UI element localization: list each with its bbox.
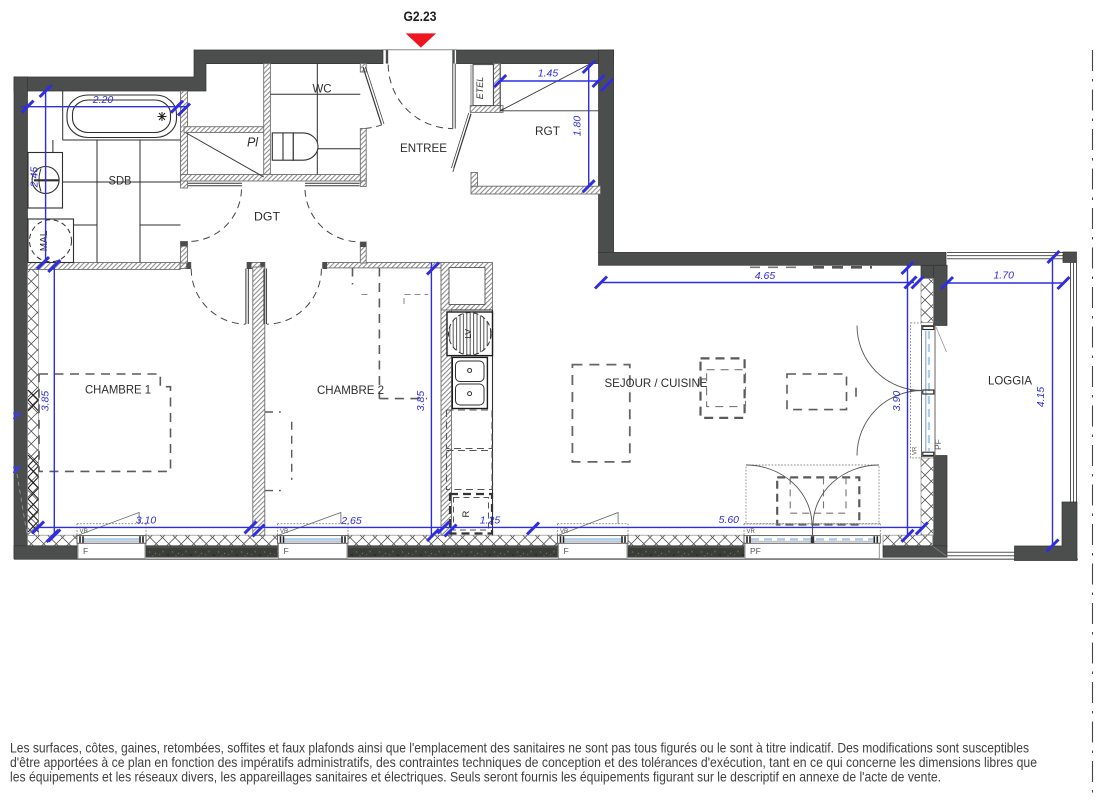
svg-text:4.65: 4.65	[755, 270, 776, 282]
svg-text:1.80: 1.80	[572, 116, 584, 137]
svg-text:1.25: 1.25	[480, 515, 501, 527]
svg-text:SDB: SDB	[109, 174, 132, 188]
svg-text:2.65: 2.65	[340, 515, 362, 527]
svg-text:ENTREE: ENTREE	[400, 141, 447, 155]
svg-text:les équipements et les réseaux: les équipements et les réseaux divers, l…	[10, 770, 941, 785]
svg-text:3.90: 3.90	[891, 391, 903, 412]
svg-text:PF: PF	[933, 439, 943, 450]
svg-text:DGT: DGT	[254, 210, 281, 224]
svg-text:LV: LV	[463, 329, 473, 339]
svg-text:WC: WC	[313, 81, 332, 95]
svg-text:F: F	[83, 546, 88, 556]
svg-text:4.15: 4.15	[1035, 387, 1047, 408]
svg-text:2.20: 2.20	[92, 94, 114, 106]
svg-text:RGT: RGT	[535, 124, 561, 138]
svg-text:d'être apportées à ce plan en: d'être apportées à ce plan en fonction d…	[10, 755, 1037, 770]
svg-text:VR: VR	[747, 529, 756, 535]
svg-text:Les surfaces, côtes, gaines, r: Les surfaces, côtes, gaines, retombées, …	[10, 741, 1029, 756]
svg-text:Pl: Pl	[247, 136, 259, 150]
svg-text:LOGGIA: LOGGIA	[988, 374, 1032, 388]
svg-text:CHAMBRE 2: CHAMBRE 2	[317, 383, 384, 397]
svg-text:CHAMBRE 1: CHAMBRE 1	[85, 383, 151, 397]
svg-text:2.45: 2.45	[29, 167, 41, 189]
svg-text:MAL: MAL	[39, 230, 50, 251]
svg-text:3.85: 3.85	[40, 391, 52, 412]
svg-text:1.70: 1.70	[993, 270, 1014, 282]
svg-text:3.10: 3.10	[136, 515, 157, 527]
svg-text:F: F	[284, 546, 289, 556]
svg-text:F: F	[564, 546, 569, 556]
svg-text:VR: VR	[913, 446, 919, 455]
svg-text:1.45: 1.45	[538, 68, 559, 80]
svg-text:5.60: 5.60	[719, 514, 740, 526]
svg-text:ETEL: ETEL	[475, 77, 485, 100]
svg-text:PF: PF	[750, 546, 761, 556]
svg-text:3.85: 3.85	[415, 391, 427, 412]
svg-text:R: R	[461, 510, 472, 517]
svg-text:G2.23: G2.23	[404, 8, 437, 24]
svg-text:SEJOUR / CUISINE: SEJOUR / CUISINE	[605, 376, 708, 390]
